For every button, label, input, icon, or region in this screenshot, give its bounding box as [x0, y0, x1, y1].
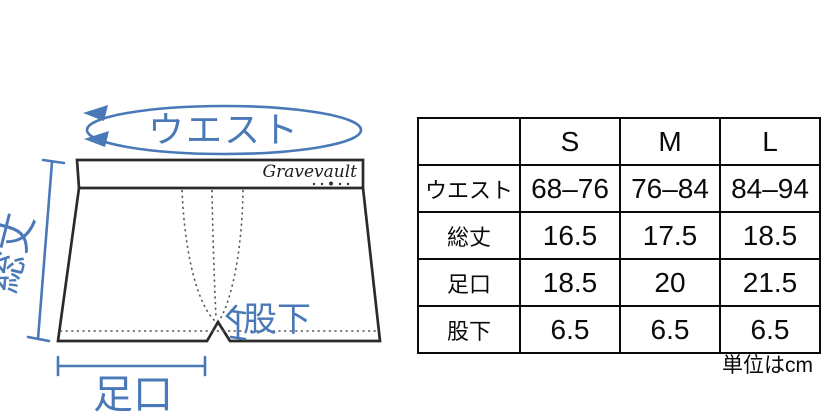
col-header-l: L [720, 118, 820, 165]
value-cell: 6.5 [520, 306, 620, 353]
unit-note: 単位はcm [417, 349, 813, 379]
leg-opening-measure: 足口 [58, 357, 205, 418]
waist-label: ウエスト [148, 110, 300, 151]
waist-measure-arrow: ウエスト [83, 105, 361, 154]
inseam-measure: 股下 [227, 300, 311, 340]
value-cell: 84–94 [720, 165, 820, 212]
size-spec-graphic: ウエスト Gravevault 総丈 [0, 0, 840, 420]
value-cell: 6.5 [620, 306, 720, 353]
boxer-shorts-drawing: Gravevault [58, 160, 380, 341]
table-row-inseam: 股下 6.5 6.5 6.5 [418, 306, 820, 353]
size-chart-table: S M L ウエスト 68–76 76–84 84–94 総丈 16.5 17.… [417, 117, 821, 354]
value-cell: 20 [620, 259, 720, 306]
measurement-diagram: ウエスト Gravevault 総丈 [0, 0, 420, 420]
value-cell: 18.5 [520, 259, 620, 306]
arrow-left-upper-icon [83, 105, 108, 121]
value-cell: 17.5 [620, 212, 720, 259]
value-cell: 76–84 [620, 165, 720, 212]
row-label: ウエスト [418, 165, 520, 212]
table-row-waist: ウエスト 68–76 76–84 84–94 [418, 165, 820, 212]
corner-cell [418, 118, 520, 165]
col-header-m: M [620, 118, 720, 165]
seam-left-dotted [182, 190, 215, 321]
table-row-total-length: 総丈 16.5 17.5 18.5 [418, 212, 820, 259]
size-chart-header-row: S M L [418, 118, 820, 165]
value-cell: 21.5 [720, 259, 820, 306]
col-header-s: S [520, 118, 620, 165]
total-length-label: 総丈 [0, 208, 43, 297]
row-label: 総丈 [418, 212, 520, 259]
value-cell: 18.5 [720, 212, 820, 259]
shorts-body-outline [58, 188, 380, 341]
value-cell: 6.5 [720, 306, 820, 353]
inseam-label: 股下 [243, 300, 311, 340]
seam-right-dotted [219, 190, 243, 321]
leg-opening-label: 足口 [93, 372, 173, 418]
row-label: 股下 [418, 306, 520, 353]
value-cell: 68–76 [520, 165, 620, 212]
row-label: 足口 [418, 259, 520, 306]
table-row-leg-opening: 足口 18.5 20 21.5 [418, 259, 820, 306]
seam-center-dotted [212, 190, 216, 318]
total-length-measure: 総丈 [0, 160, 64, 341]
value-cell: 16.5 [520, 212, 620, 259]
brand-logo: Gravevault [263, 162, 358, 182]
